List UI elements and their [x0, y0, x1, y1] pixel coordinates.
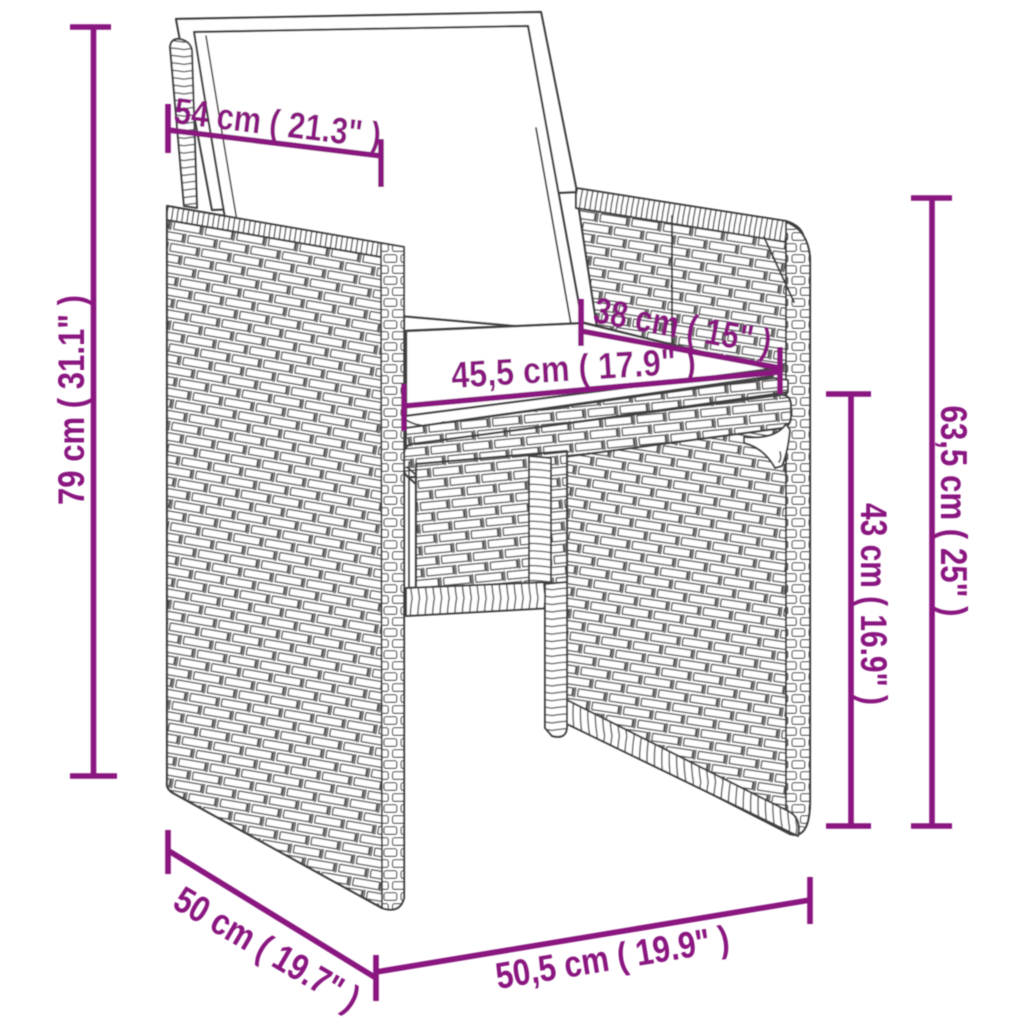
svg-text:43 cm ( 16.9" ): 43 cm ( 16.9" )	[853, 503, 894, 705]
svg-text:79 cm ( 31.1" ): 79 cm ( 31.1" )	[51, 295, 92, 505]
svg-text:63,5 cm ( 25" ): 63,5 cm ( 25" )	[933, 406, 974, 617]
